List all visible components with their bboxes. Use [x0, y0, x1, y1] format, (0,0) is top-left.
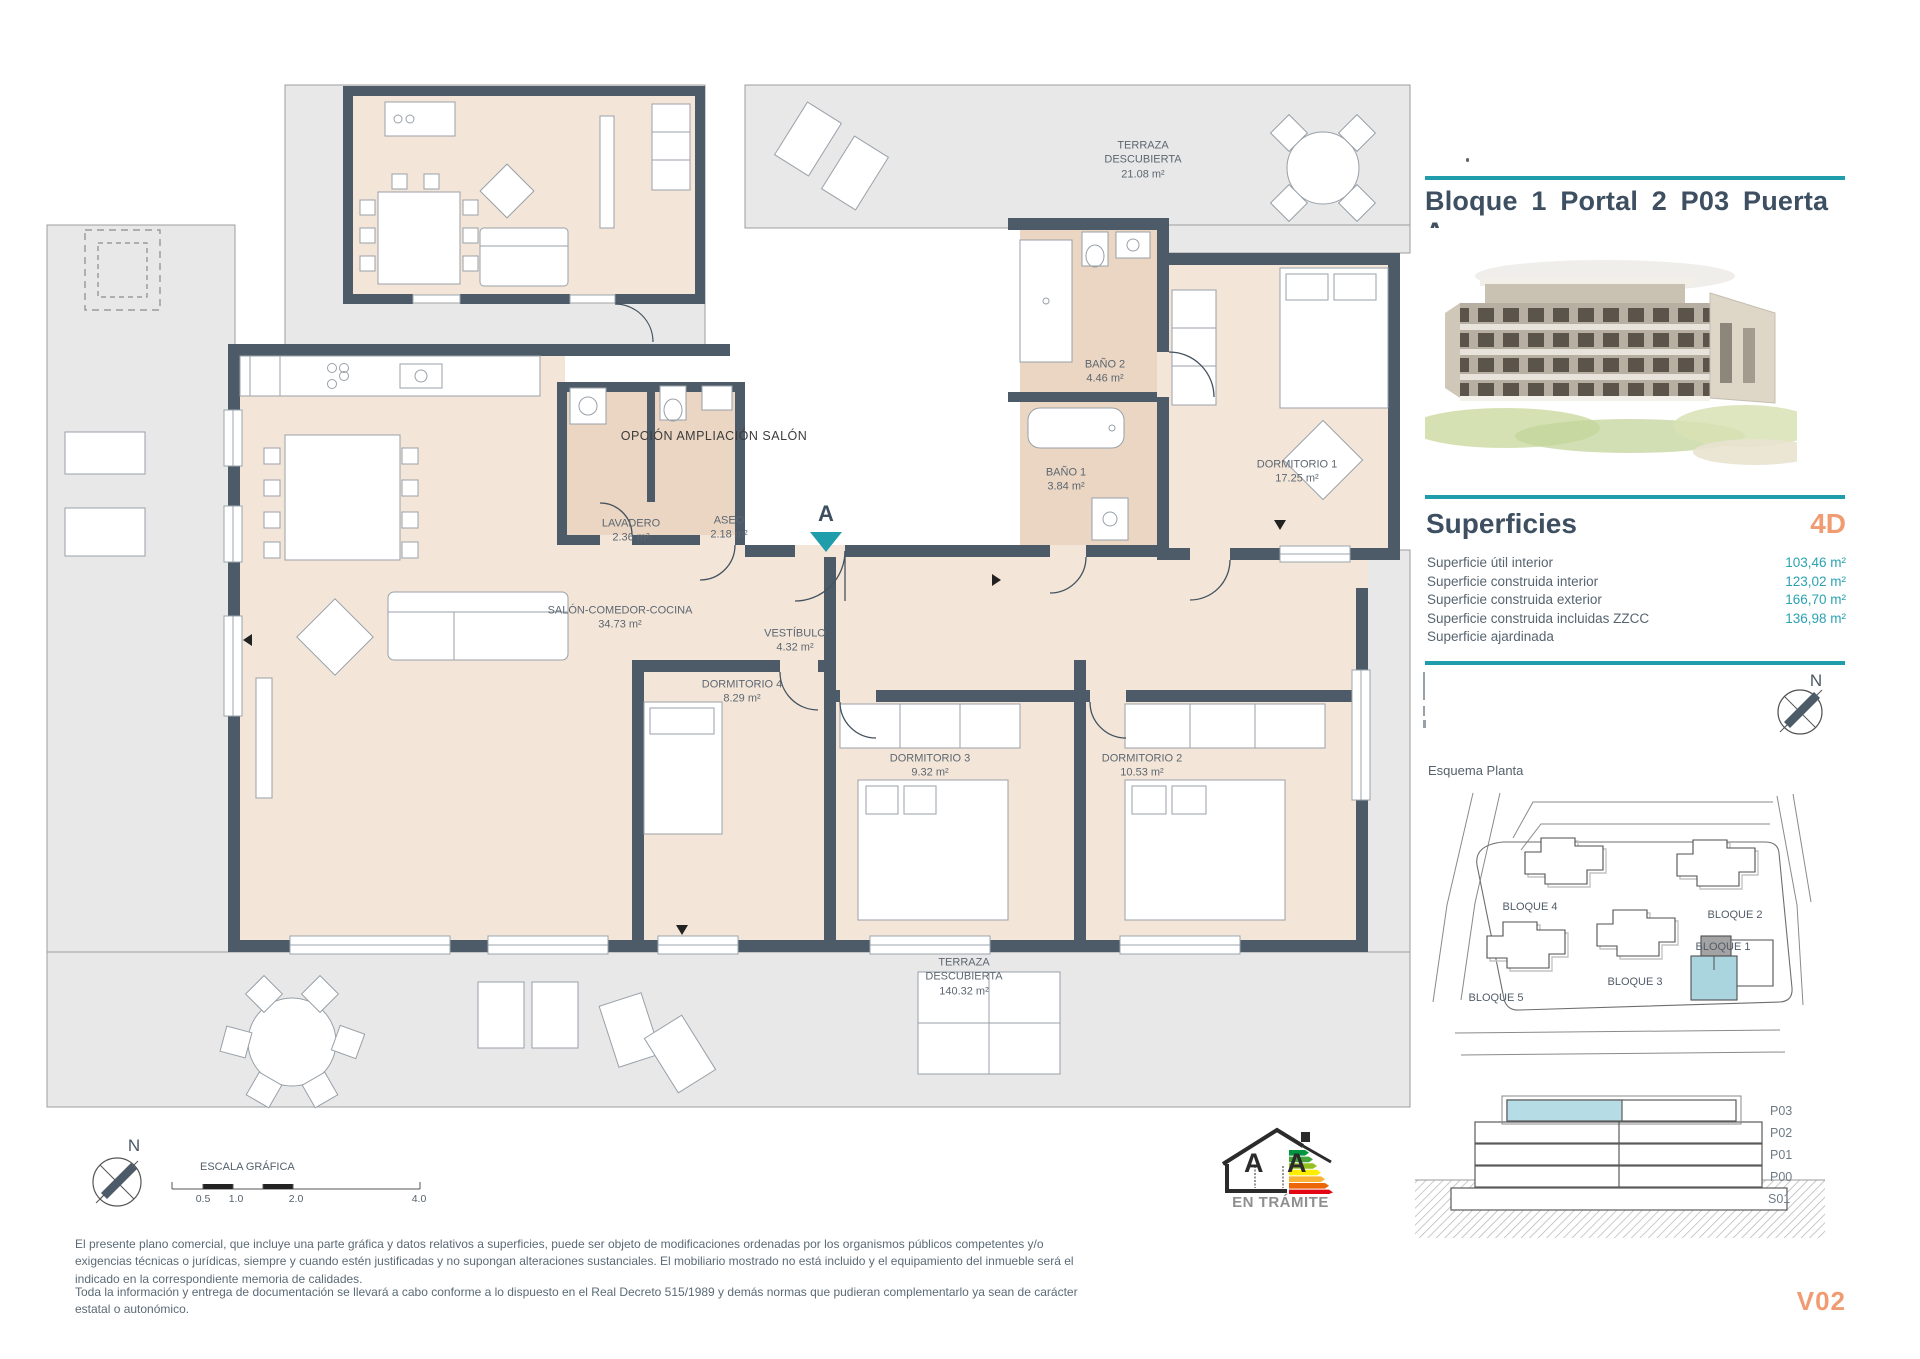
disclaimer-paragraph-2: Toda la información y entrega de documen… [75, 1284, 1080, 1319]
table-row: Superficie construida interior123,02 m² [1427, 573, 1846, 592]
label-aseo: ASEO 2.18 m² [710, 514, 747, 543]
label-salon: SALÓN-COMEDOR-COCINA 34.73 m² [548, 604, 693, 633]
label-vestibulo: VESTÍBULO 4.32 m² [764, 627, 826, 656]
compass-n-label: N [1810, 671, 1822, 691]
sitemap-label-bloque4: BLOQUE 4 [1502, 901, 1557, 913]
floor-p03-highlight [1507, 1100, 1622, 1121]
dot-artifact [1466, 158, 1469, 162]
terrace-top-ext [1157, 225, 1410, 253]
superficies-table: Superficie útil interior103,46 m² Superf… [1427, 554, 1846, 647]
label-bano1: BAÑO 1 3.84 m² [1046, 466, 1086, 495]
teal-rule-bottom [1425, 661, 1845, 665]
energy-status: EN TRÁMITE [1213, 1194, 1348, 1211]
floorplan-sheet: { "header": { "title": "Bloque 1 Portal … [0, 0, 1920, 1359]
label-dormitorio2: DORMITORIO 2 10.53 m² [1102, 752, 1182, 781]
scale-tick: 2.0 [289, 1193, 304, 1205]
section-label-p03: P03 [1770, 1104, 1792, 1118]
building-render [1425, 228, 1797, 476]
sitemap-label-bloque5: BLOQUE 5 [1468, 992, 1523, 1004]
table-row: Superficie útil interior103,46 m² [1427, 554, 1846, 573]
label-terraza-bottom: TERRAZA DESCUBIERTA 140.32 m² [914, 956, 1014, 999]
label-dormitorio3: DORMITORIO 3 9.32 m² [890, 752, 970, 781]
section-label-p00: P00 [1770, 1170, 1792, 1184]
section-label-p01: P01 [1770, 1148, 1792, 1162]
scale-tick: 1.0 [229, 1193, 244, 1205]
floor-s01 [1451, 1188, 1787, 1210]
compass-icon [89, 1140, 151, 1212]
disclaimer-paragraph-1: El presente plano comercial, que incluye… [75, 1236, 1080, 1288]
energy-letters: A A [1244, 1148, 1316, 1179]
unit-type-badge: 4D [1760, 508, 1846, 540]
table-row: Superficie construida incluidas ZZCC136,… [1427, 610, 1846, 629]
label-dormitorio1: DORMITORIO 1 17.25 m² [1257, 458, 1337, 487]
sitemap-label-bloque3: BLOQUE 3 [1607, 976, 1662, 988]
compass-icon [1772, 668, 1834, 738]
scale-label: ESCALA GRÁFICA [200, 1161, 295, 1173]
sitemap-label-bloque2: BLOQUE 2 [1707, 909, 1762, 921]
label-terraza-top: TERRAZA DESCUBIERTA 21.08 m² [1093, 139, 1193, 182]
version-code: V02 [1760, 1286, 1846, 1317]
compass-n-label: N [128, 1136, 140, 1156]
esquema-planta-label: Esquema Planta [1428, 763, 1523, 778]
kitchen-counter [240, 356, 540, 396]
section-label-p02: P02 [1770, 1126, 1792, 1140]
sitemap-label-bloque1: BLOQUE 1 [1695, 941, 1750, 953]
section-marker-a: A [818, 501, 834, 527]
building-section-diagram [1412, 1092, 1832, 1247]
section-label-s01: S01 [1768, 1192, 1790, 1206]
table-row: Superficie construida exterior166,70 m² [1427, 591, 1846, 610]
label-bano2: BAÑO 2 4.46 m² [1085, 358, 1125, 387]
teal-rule-top [1425, 176, 1845, 180]
label-dormitorio4: DORMITORIO 4 8.29 m² [702, 678, 782, 707]
scale-tick: 4.0 [412, 1193, 427, 1205]
floorplan-drawing [40, 80, 1420, 1110]
superficies-heading: Superficies [1426, 508, 1577, 540]
table-row: Superficie ajardinada [1427, 628, 1846, 647]
scale-tick: 0.5 [196, 1193, 211, 1205]
clipped-text-fragment [1423, 672, 1429, 732]
siteplan-drawing [1425, 790, 1880, 1075]
teal-rule-mid [1425, 495, 1845, 499]
option-ampliacion-label: OPCIÓN AMPLIACIÓN SALÓN [621, 429, 808, 443]
label-lavadero: LAVADERO 2.36 m² [602, 517, 660, 546]
